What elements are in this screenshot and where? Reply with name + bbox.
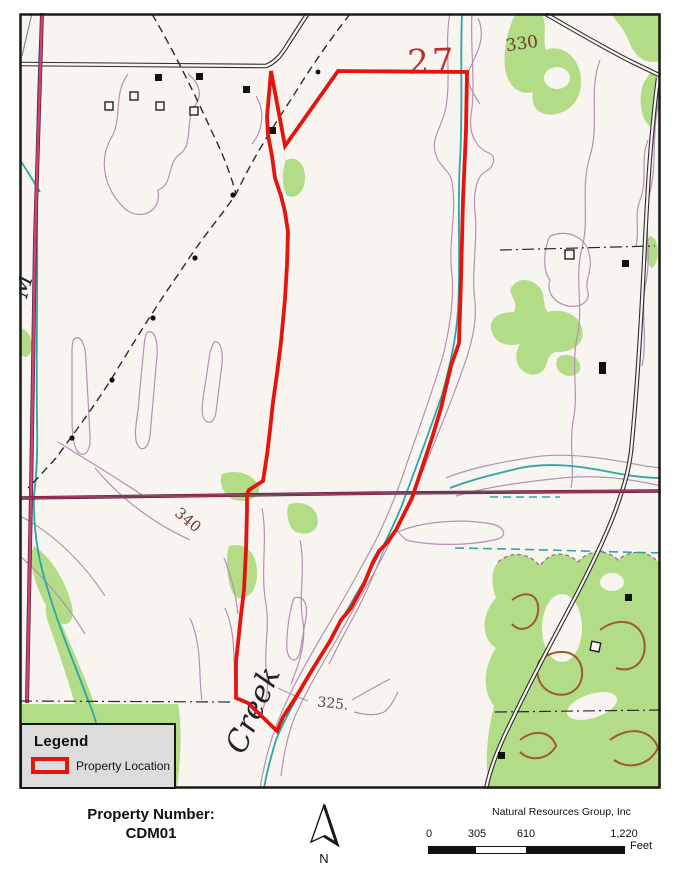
scale-bar-strip: [428, 846, 625, 854]
north-arrow-block: N: [303, 800, 345, 866]
scale-tick-0: 0: [426, 828, 432, 840]
contour-label-325: 325.: [317, 694, 350, 713]
scale-bar-white-segment: [476, 847, 526, 853]
property-number-block: Property Number: CDM01: [55, 806, 247, 844]
north-label: N: [303, 851, 345, 866]
legend-title: Legend: [34, 733, 174, 750]
section-number-label: 27: [407, 41, 458, 83]
scale-tick-610: 610: [517, 828, 535, 840]
topo-map-canvas: 330 340 325. Creek M 27: [19, 13, 661, 789]
legend-box: Legend Property Location: [20, 723, 176, 789]
forest-area: [485, 552, 661, 789]
north-arrow-icon: [303, 800, 345, 852]
legend-item: Property Location: [31, 757, 174, 774]
property-number-label: Property Number:: [55, 806, 247, 825]
property-number-value: CDM01: [55, 825, 247, 844]
scale-bar: 0 305 610 1,220 Feet: [428, 828, 668, 860]
legend-item-label: Property Location: [76, 759, 170, 773]
scale-tick-1220: 1,220: [610, 828, 638, 840]
property-location-swatch: [31, 757, 69, 774]
attribution-text: Natural Resources Group, Inc: [492, 806, 631, 818]
scale-tick-305: 305: [468, 828, 486, 840]
topo-map: 330 340 325. Creek M 27: [19, 13, 661, 789]
scale-unit-label: Feet: [630, 840, 652, 852]
vegetation-clearing: [544, 67, 570, 89]
